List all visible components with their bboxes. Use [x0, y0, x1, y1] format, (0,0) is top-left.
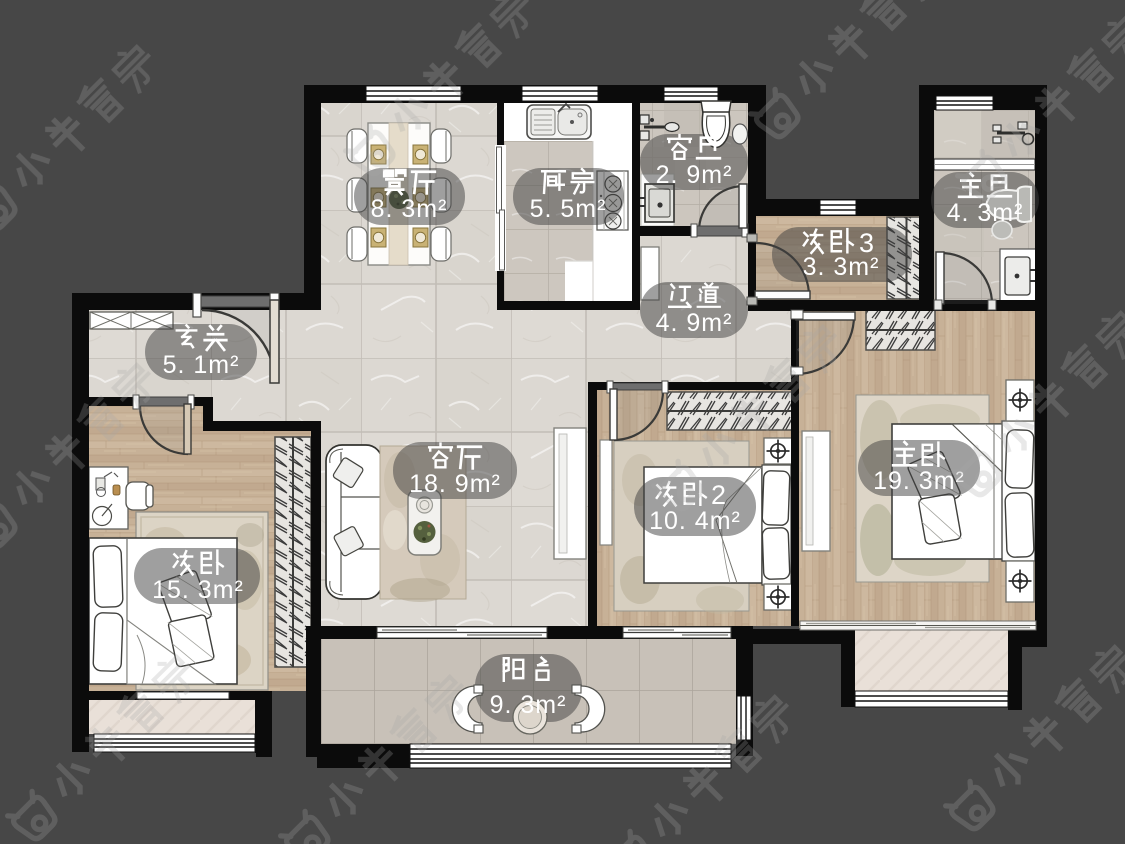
- svg-text:9. 3m²: 9. 3m²: [490, 691, 567, 719]
- svg-text:5. 5m²: 5. 5m²: [530, 195, 607, 223]
- svg-text:2. 9m²: 2. 9m²: [656, 161, 733, 189]
- svg-text:3. 3m²: 3. 3m²: [803, 253, 880, 281]
- svg-text:4. 3m²: 4. 3m²: [947, 199, 1024, 227]
- svg-text:5. 1m²: 5. 1m²: [163, 351, 240, 379]
- svg-text:2: 2: [711, 480, 726, 510]
- svg-text:4. 9m²: 4. 9m²: [656, 309, 733, 337]
- svg-text:18. 9m²: 18. 9m²: [409, 470, 501, 498]
- svg-text:10. 4m²: 10. 4m²: [649, 507, 741, 535]
- svg-text:15. 3m²: 15. 3m²: [152, 576, 244, 604]
- svg-text:8. 3m²: 8. 3m²: [371, 195, 448, 223]
